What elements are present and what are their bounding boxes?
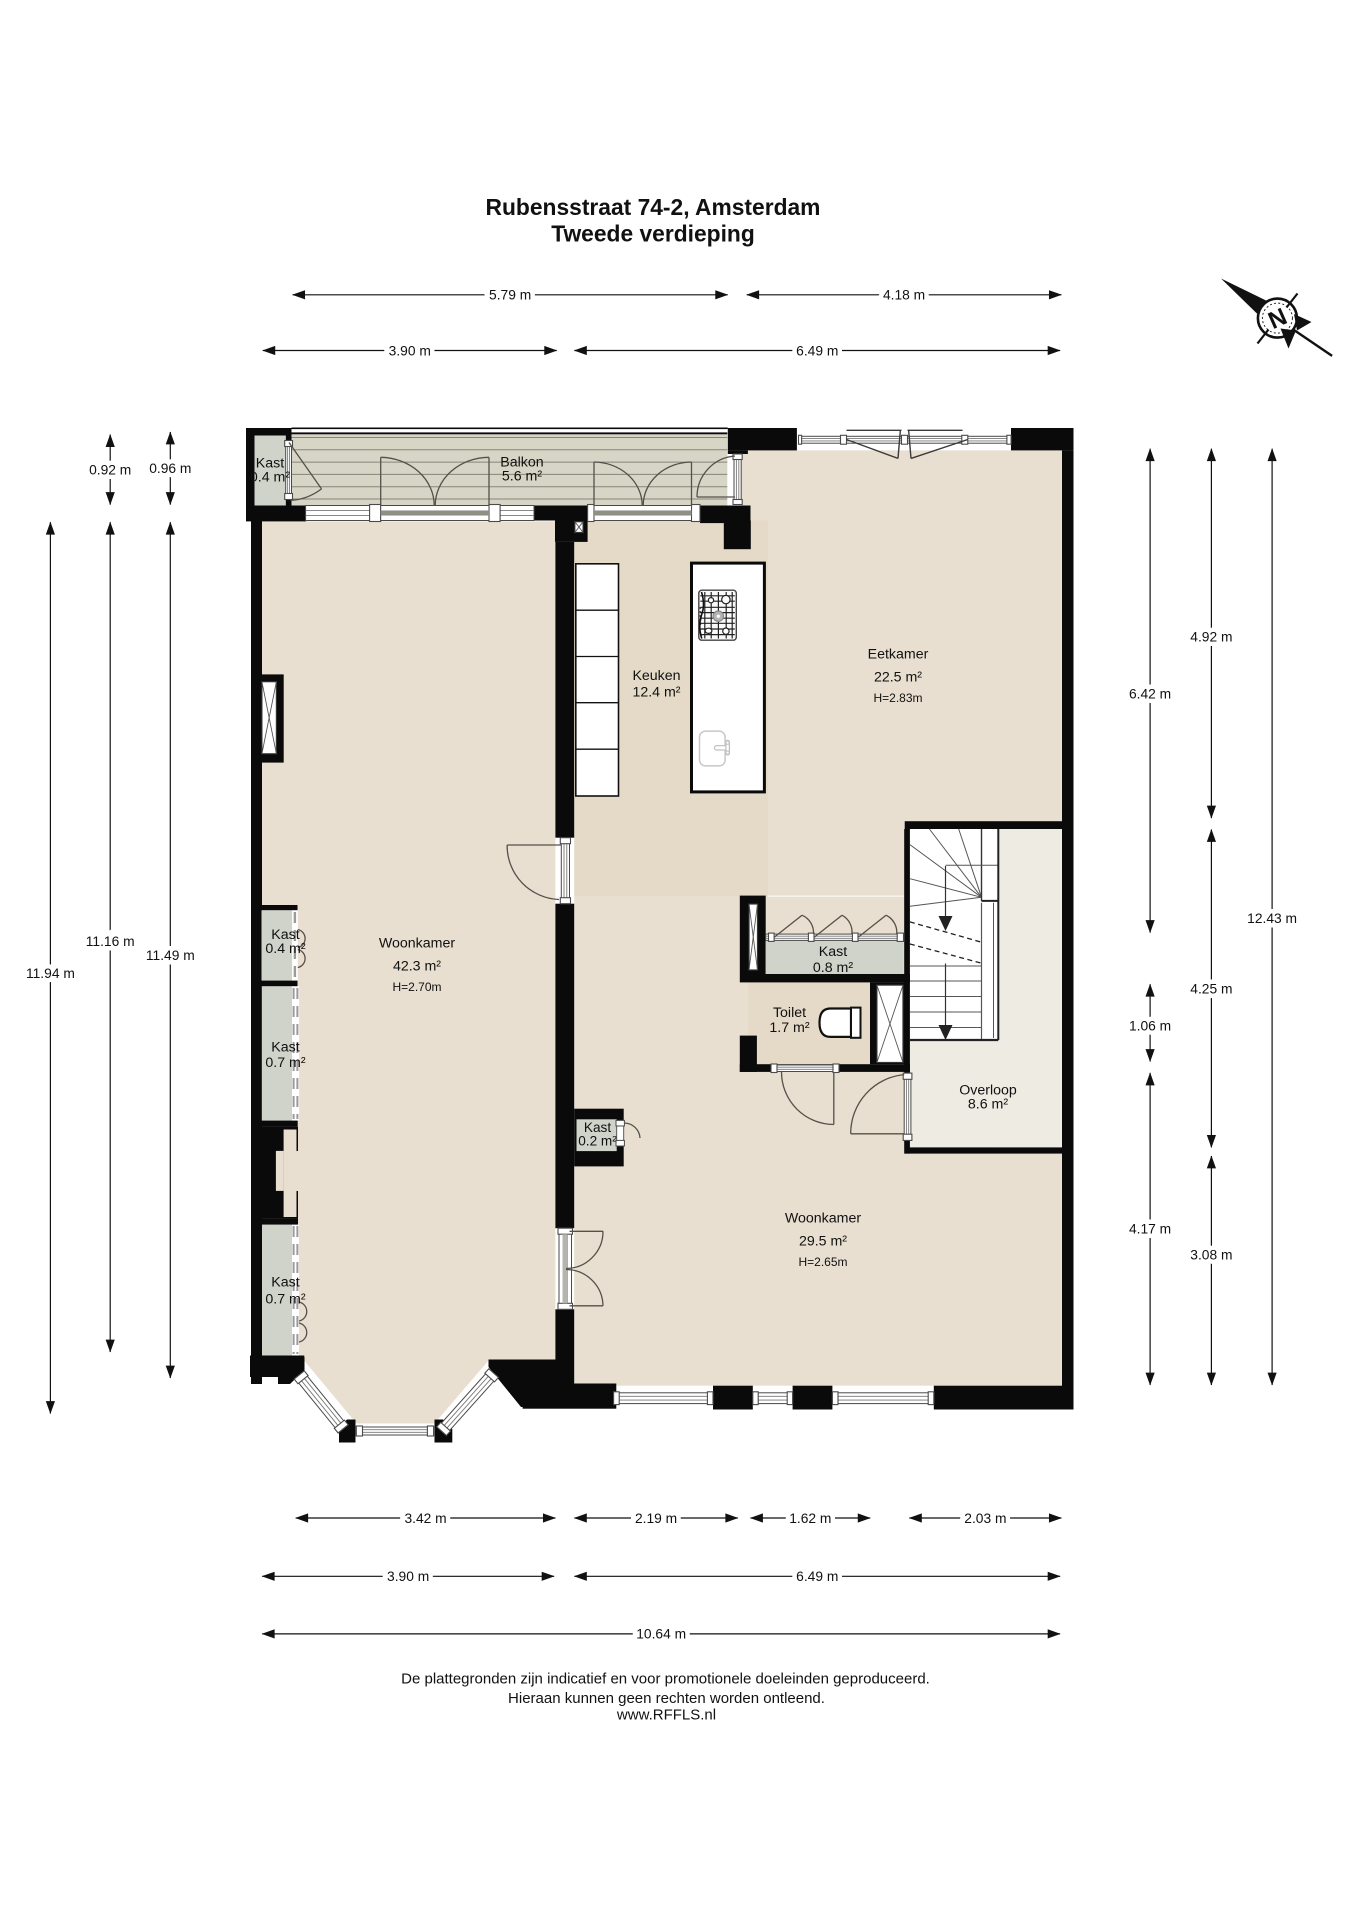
- svg-text:4.17 m: 4.17 m: [1129, 1222, 1171, 1237]
- svg-text:Woonkamer: Woonkamer: [785, 1211, 861, 1227]
- svg-text:0.4 m²: 0.4 m²: [250, 470, 290, 486]
- svg-text:12.43 m: 12.43 m: [1247, 911, 1297, 926]
- svg-text:3.90 m: 3.90 m: [389, 343, 431, 358]
- svg-text:3.08 m: 3.08 m: [1190, 1247, 1232, 1262]
- svg-text:www.RFFLS.nl: www.RFFLS.nl: [616, 1707, 716, 1724]
- svg-text:0.7 m²: 0.7 m²: [265, 1291, 305, 1307]
- svg-text:11.94 m: 11.94 m: [26, 966, 75, 981]
- svg-text:6.49 m: 6.49 m: [796, 1569, 838, 1584]
- svg-text:0.7 m²: 0.7 m²: [265, 1055, 305, 1071]
- svg-text:10.64 m: 10.64 m: [636, 1627, 686, 1642]
- svg-text:Woonkamer: Woonkamer: [379, 936, 455, 952]
- svg-text:12.4 m²: 12.4 m²: [632, 685, 680, 701]
- svg-text:4.25 m: 4.25 m: [1190, 982, 1232, 997]
- svg-text:H=2.65m: H=2.65m: [798, 1255, 847, 1269]
- svg-text:Eetkamer: Eetkamer: [868, 647, 929, 663]
- svg-text:3.42 m: 3.42 m: [404, 1511, 446, 1526]
- svg-text:2.03 m: 2.03 m: [964, 1511, 1006, 1526]
- svg-text:Kast: Kast: [271, 1275, 299, 1291]
- svg-text:Keuken: Keuken: [632, 668, 680, 684]
- svg-text:Kast: Kast: [271, 1040, 299, 1056]
- svg-text:29.5 m²: 29.5 m²: [799, 1233, 847, 1249]
- svg-text:4.18 m: 4.18 m: [883, 288, 925, 303]
- svg-text:De plattegronden zijn indicati: De plattegronden zijn indicatief en voor…: [401, 1671, 930, 1688]
- svg-text:11.49 m: 11.49 m: [146, 948, 195, 963]
- svg-text:0.96 m: 0.96 m: [149, 461, 191, 476]
- svg-text:0.4 m²: 0.4 m²: [265, 941, 305, 957]
- svg-text:1.7 m²: 1.7 m²: [769, 1020, 809, 1036]
- svg-text:42.3 m²: 42.3 m²: [393, 958, 441, 974]
- svg-text:Toilet: Toilet: [773, 1005, 806, 1021]
- svg-text:1.06 m: 1.06 m: [1129, 1019, 1171, 1034]
- svg-text:0.92 m: 0.92 m: [89, 462, 131, 477]
- svg-text:Hieraan kunnen geen rechten wo: Hieraan kunnen geen rechten worden ontle…: [508, 1690, 825, 1707]
- svg-text:0.8 m²: 0.8 m²: [813, 960, 853, 976]
- svg-text:3.90 m: 3.90 m: [387, 1569, 429, 1584]
- svg-text:4.92 m: 4.92 m: [1190, 629, 1232, 644]
- svg-text:1.62 m: 1.62 m: [789, 1511, 831, 1526]
- svg-text:11.16 m: 11.16 m: [86, 934, 135, 949]
- svg-text:8.6 m²: 8.6 m²: [968, 1097, 1008, 1113]
- svg-text:0.2 m²: 0.2 m²: [578, 1133, 617, 1148]
- svg-text:6.49 m: 6.49 m: [796, 343, 838, 358]
- svg-text:Kast: Kast: [819, 944, 847, 960]
- svg-text:Tweede verdieping: Tweede verdieping: [551, 220, 755, 246]
- svg-text:H=2.83m: H=2.83m: [873, 691, 922, 705]
- svg-text:2.19 m: 2.19 m: [635, 1511, 677, 1526]
- svg-text:H=2.70m: H=2.70m: [392, 980, 441, 994]
- svg-text:5.6 m²: 5.6 m²: [502, 469, 542, 485]
- svg-text:Rubensstraat 74-2, Amsterdam: Rubensstraat 74-2, Amsterdam: [486, 194, 821, 220]
- svg-text:22.5 m²: 22.5 m²: [874, 669, 922, 685]
- svg-text:5.79 m: 5.79 m: [489, 288, 531, 303]
- svg-text:6.42 m: 6.42 m: [1129, 687, 1171, 702]
